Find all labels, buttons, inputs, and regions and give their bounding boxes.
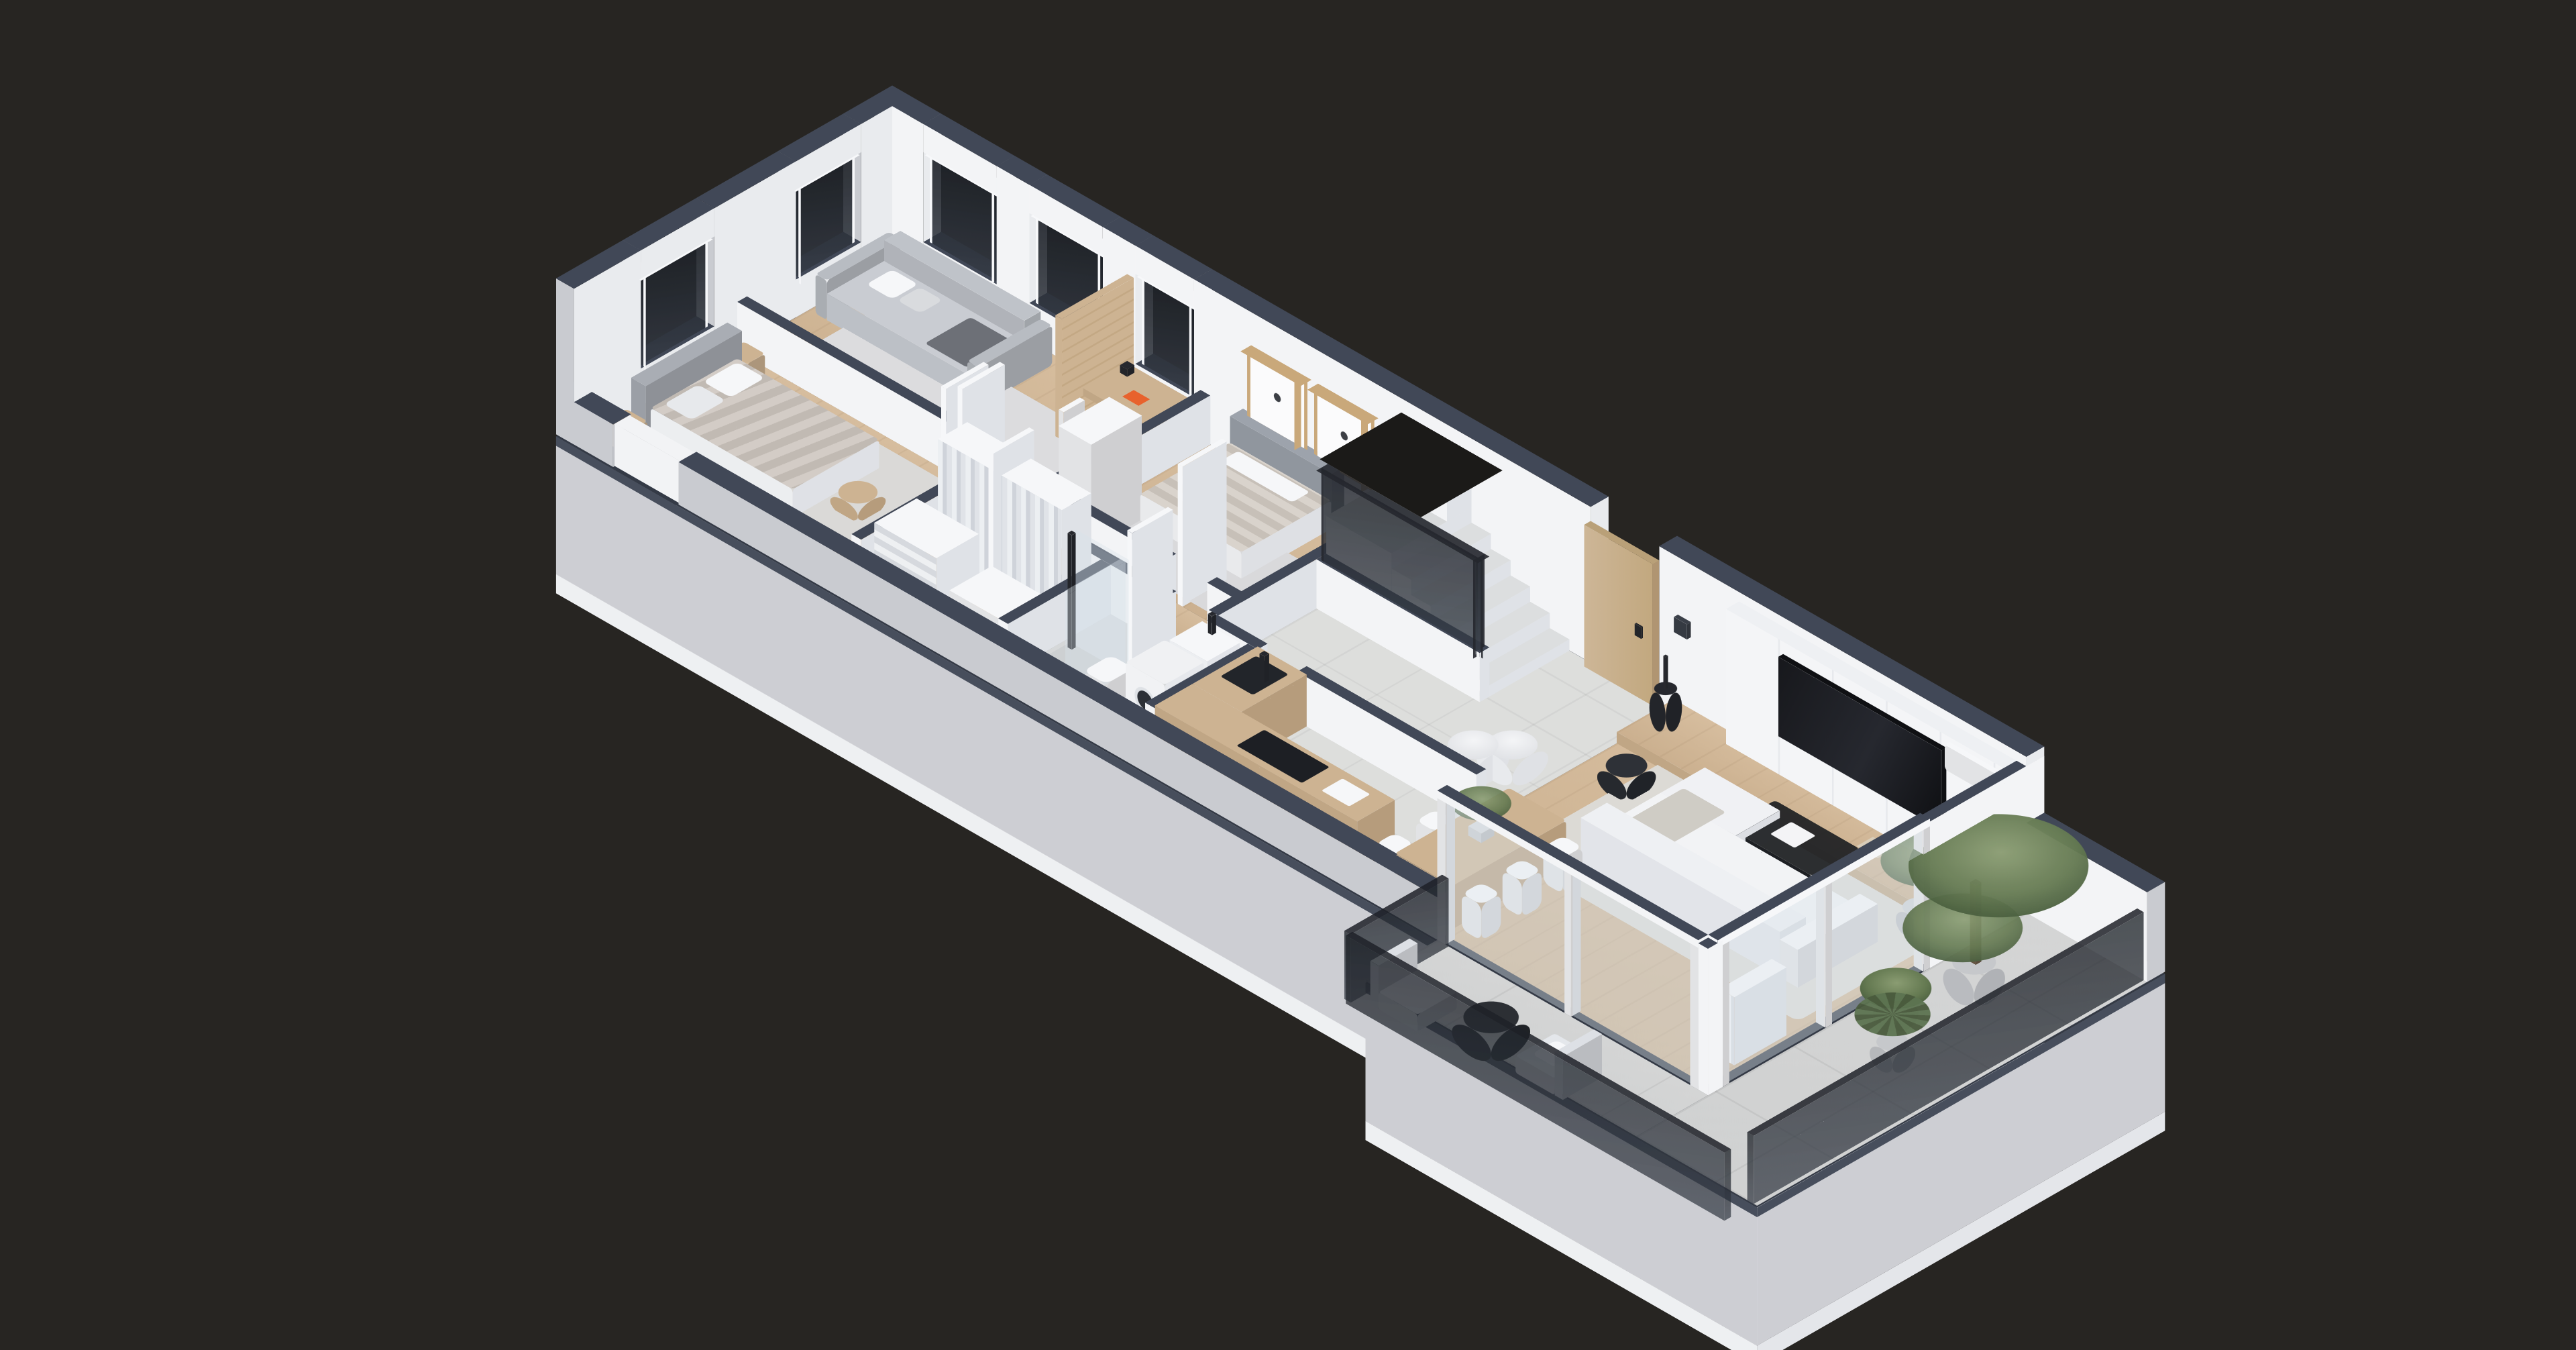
- floor-plan-render: [0, 0, 2576, 1350]
- decor-twig-right: [1666, 656, 1668, 690]
- slider-south-post-3-front: [1690, 939, 1698, 1090]
- slider-south-post-2-front: [1564, 866, 1571, 1017]
- terrace-glass-south-right: [1725, 1149, 1731, 1221]
- shower-glass-north-right: [1124, 560, 1128, 674]
- bath-faucet-right: [1212, 614, 1216, 635]
- wall-living-east-end-front: [1699, 943, 1709, 1096]
- kids-sofa-arm-west-front: [816, 274, 827, 320]
- slider-east-post-2-right: [1825, 882, 1832, 1028]
- kitchen-faucet-right: [1265, 654, 1269, 684]
- slider-east-post-3-right: [1723, 941, 1729, 1087]
- terrace-glass-east-front: [1748, 1132, 1754, 1204]
- terrace-parapet-right: [2147, 882, 2165, 982]
- entry-intercom-panel-right: [1687, 622, 1691, 639]
- door-single-front: [1178, 464, 1183, 607]
- kitchen-faucet-front: [1259, 654, 1264, 684]
- wall-living-east-end-right: [1708, 940, 1723, 1095]
- halfwall-stair-right: [1480, 647, 1490, 703]
